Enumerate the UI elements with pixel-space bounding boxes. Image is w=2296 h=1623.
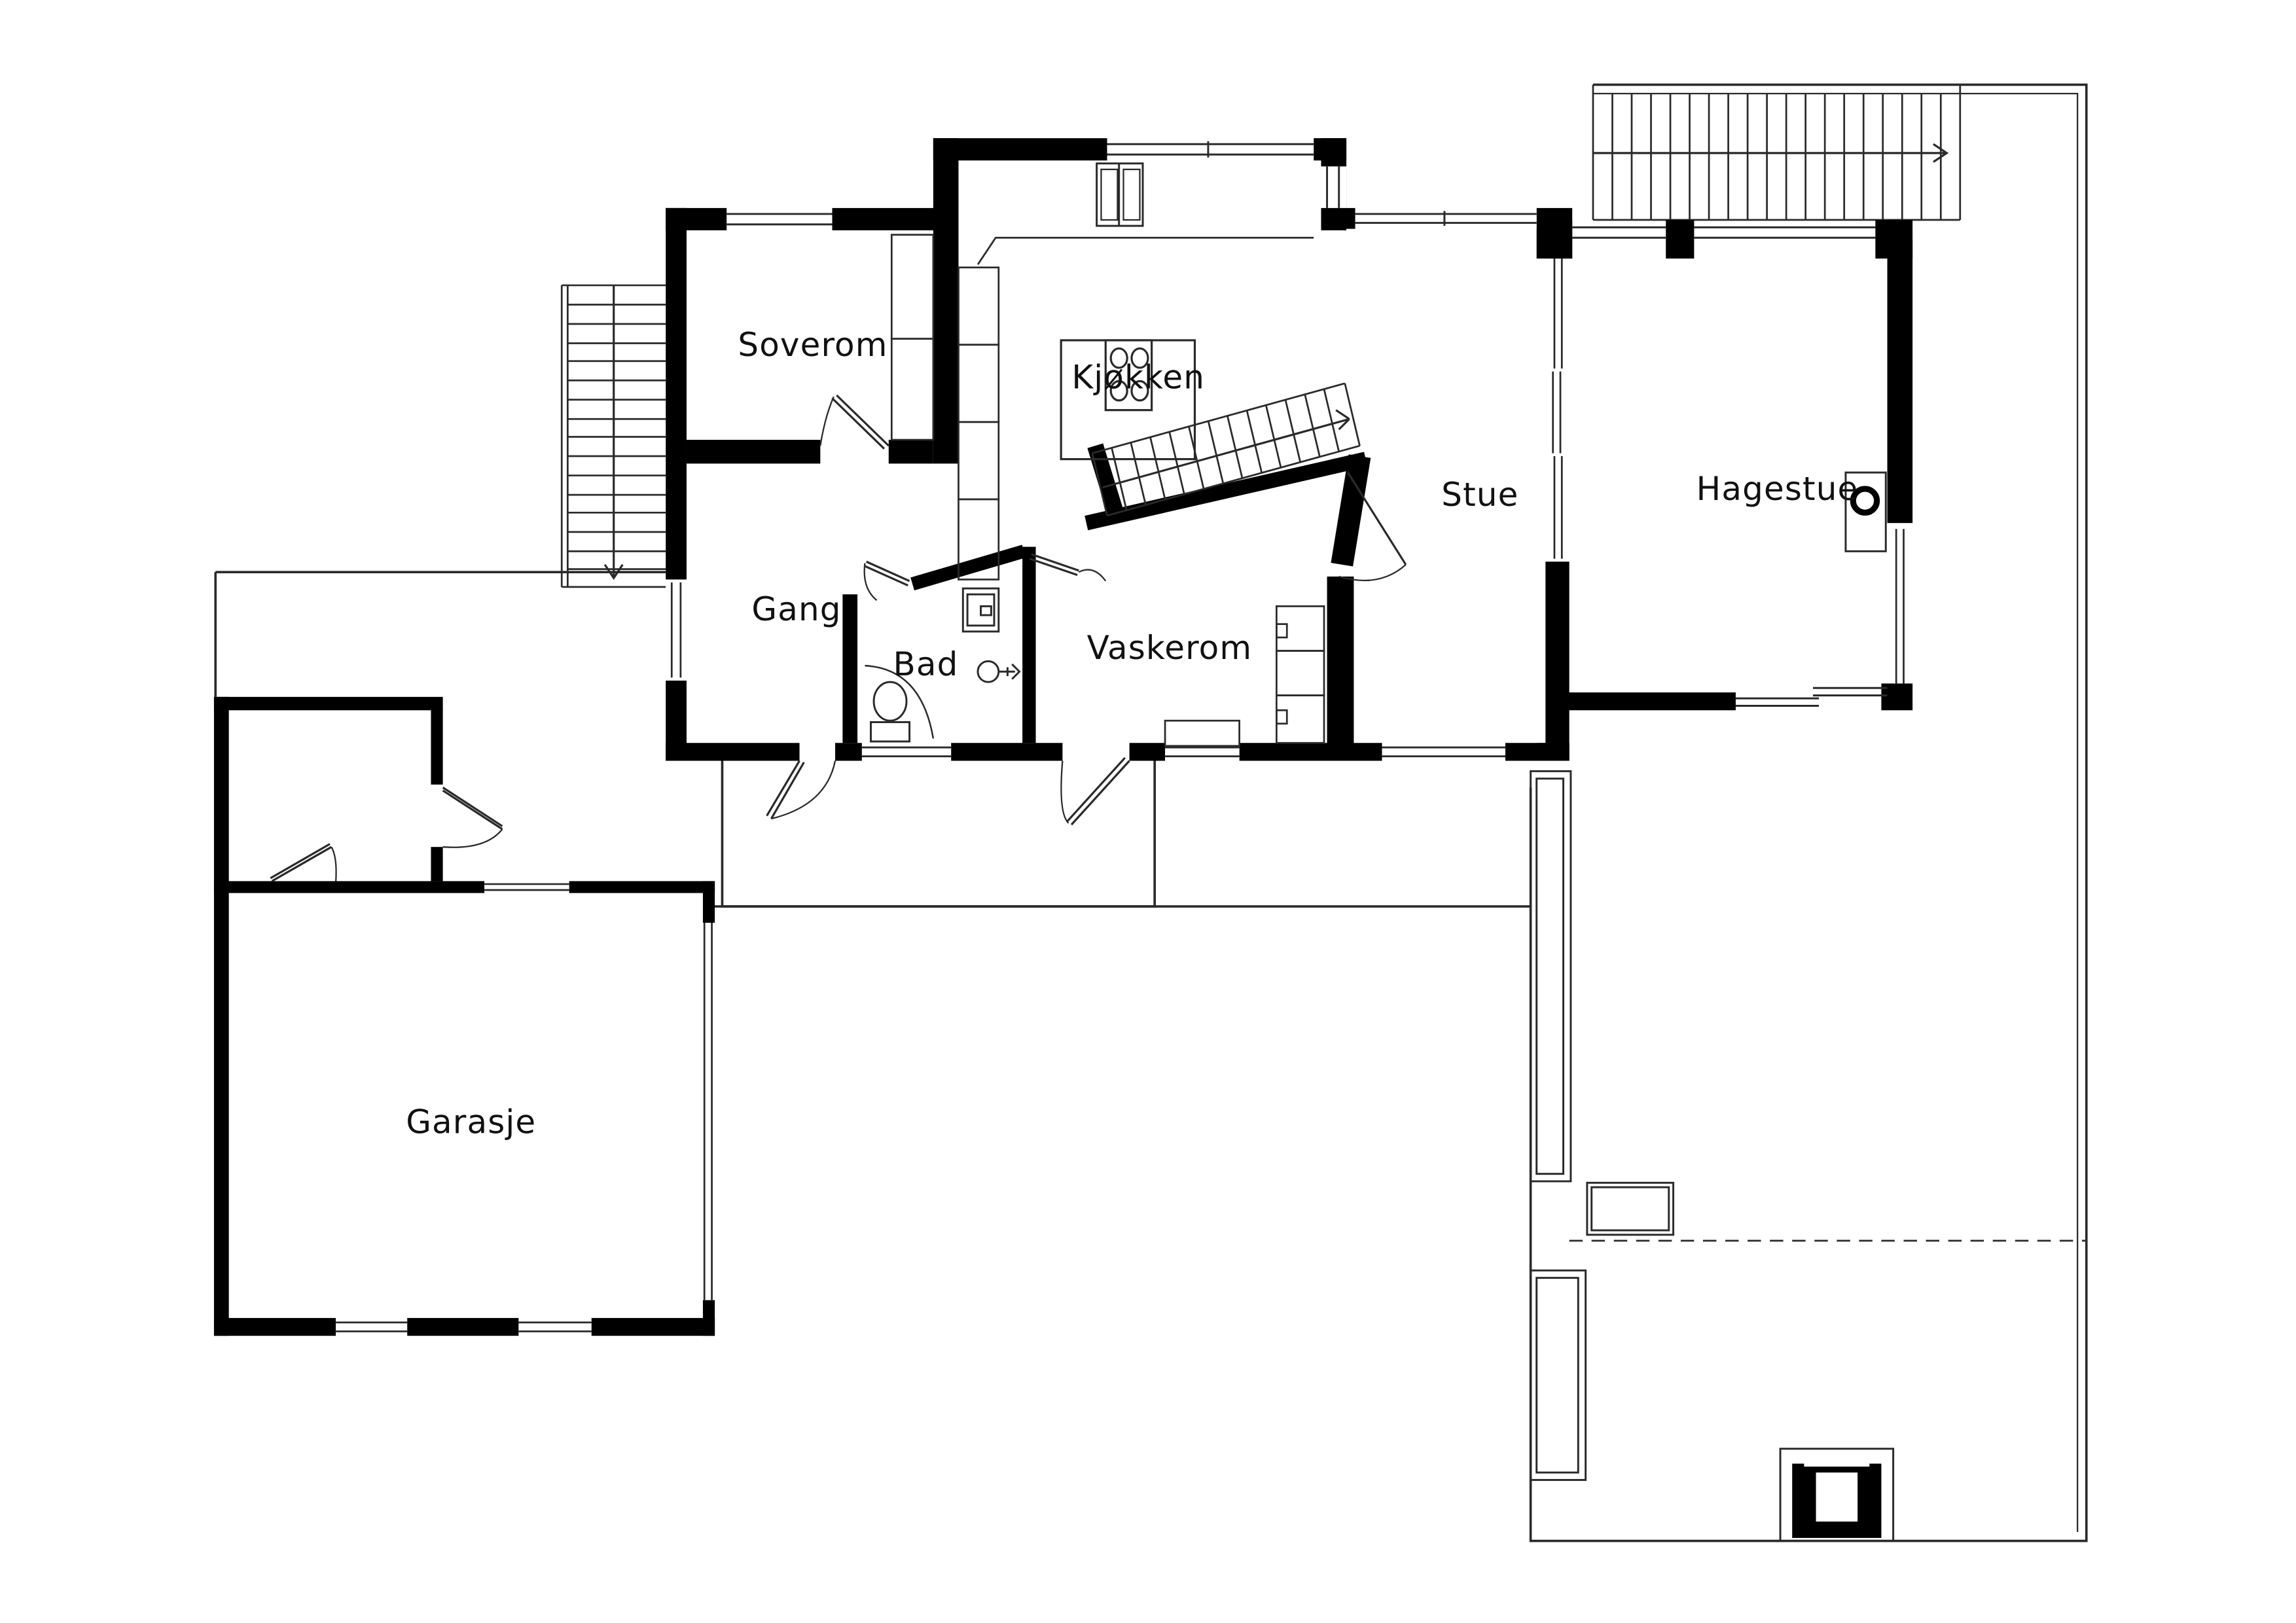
garage-door-side	[704, 923, 711, 1300]
door-swing	[443, 829, 503, 847]
room-label-garasje: Garasje	[406, 1105, 536, 1142]
slanted-walls	[912, 446, 1366, 584]
divider-top-cap	[1342, 456, 1359, 565]
casement-window	[1097, 164, 1143, 226]
wardrobe	[891, 235, 933, 440]
kitchen-island	[1061, 340, 1194, 459]
room-label-stue: Stue	[1441, 478, 1518, 515]
toilet-icon	[871, 682, 910, 741]
sink-icon	[978, 661, 1020, 682]
room-label-bad: Bad	[893, 647, 959, 685]
terrace-stairs	[1593, 84, 1960, 220]
room-label-kjokken: Kjøkken	[1071, 361, 1205, 398]
exterior-stairs-left	[562, 285, 666, 587]
washer-cabinets	[1276, 606, 1324, 743]
bench	[1165, 721, 1240, 746]
floor-plan-page: Soverom Kjøkken Stue Hagestue Gang Bad V…	[0, 0, 2296, 1622]
stair-lower-wall	[1086, 459, 1366, 524]
bod-doors	[270, 787, 502, 881]
planter	[1531, 771, 1674, 1480]
bad-wall-cabinet	[963, 588, 998, 632]
room-label-soverom: Soverom	[738, 328, 888, 365]
stair-direction-arrow	[1593, 144, 1946, 162]
room-label-hagestue: Hagestue	[1696, 472, 1859, 509]
door-leaf	[443, 787, 503, 829]
house-walls	[666, 138, 1912, 760]
floor-plan-drawing	[0, 0, 2296, 1622]
sliding-door	[1736, 688, 1888, 705]
door-leaf	[270, 844, 331, 882]
cabinets	[958, 268, 998, 580]
stair-direction-arrow	[605, 285, 622, 578]
kitchen-counter	[978, 238, 1314, 264]
room-label-vaskerom: Vaskerom	[1087, 631, 1253, 668]
door-swing	[331, 847, 336, 881]
hot-tub	[1780, 1449, 1893, 1541]
room-label-gang: Gang	[751, 592, 841, 630]
garage-walls	[214, 697, 715, 1336]
